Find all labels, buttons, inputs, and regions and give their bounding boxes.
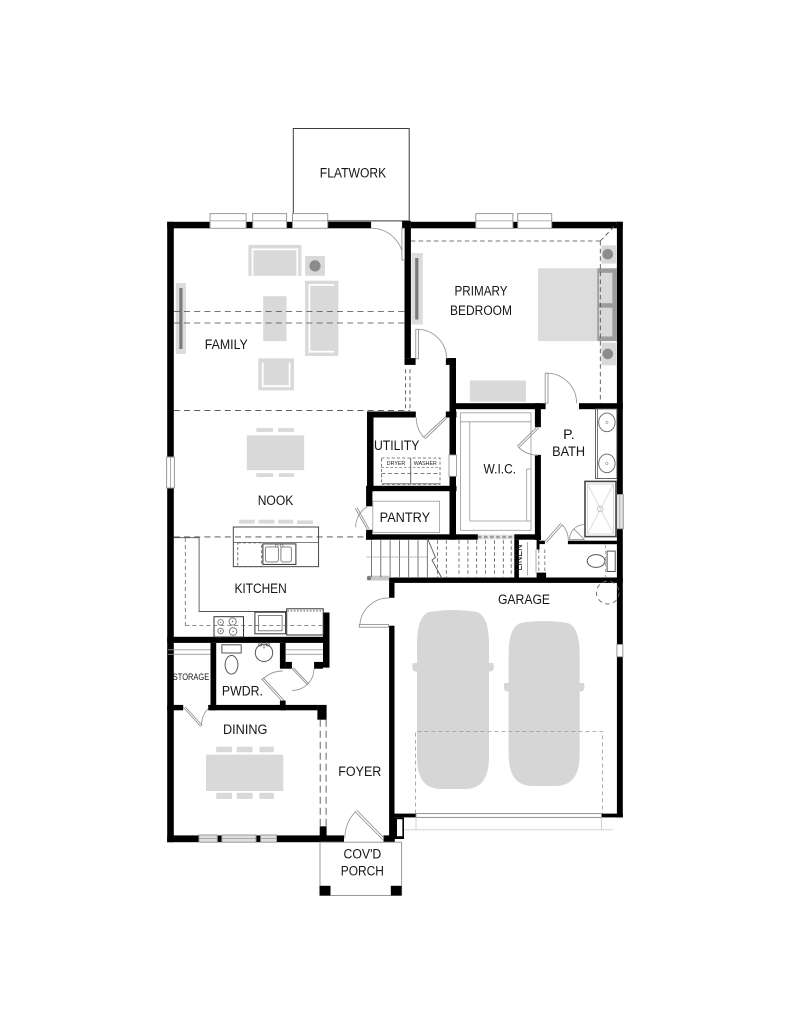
svg-text:COV'D: COV'D (344, 847, 382, 863)
svg-text:PORCH: PORCH (341, 863, 384, 879)
svg-text:KITCHEN: KITCHEN (234, 581, 286, 597)
svg-text:FOYER: FOYER (338, 764, 381, 780)
svg-text:WASHER: WASHER (414, 461, 437, 467)
svg-text:FLATWORK: FLATWORK (320, 165, 387, 181)
svg-text:GARAGE: GARAGE (498, 592, 550, 608)
svg-text:BATH: BATH (552, 444, 585, 460)
svg-text:NOOK: NOOK (258, 493, 294, 509)
svg-text:UTILITY: UTILITY (374, 438, 420, 454)
svg-text:BEDROOM: BEDROOM (450, 303, 512, 319)
svg-text:DRYER: DRYER (387, 461, 406, 467)
svg-text:P.: P. (563, 427, 575, 443)
svg-text:LINEN: LINEN (514, 545, 525, 571)
svg-text:PWDR.: PWDR. (222, 684, 263, 700)
svg-text:W.I.C.: W.I.C. (484, 462, 517, 478)
svg-text:FAMILY: FAMILY (205, 337, 248, 353)
svg-text:PRIMARY: PRIMARY (455, 284, 508, 300)
svg-text:PANTRY: PANTRY (380, 510, 431, 526)
svg-text:STORAGE: STORAGE (173, 672, 209, 682)
svg-text:DINING: DINING (223, 722, 267, 738)
